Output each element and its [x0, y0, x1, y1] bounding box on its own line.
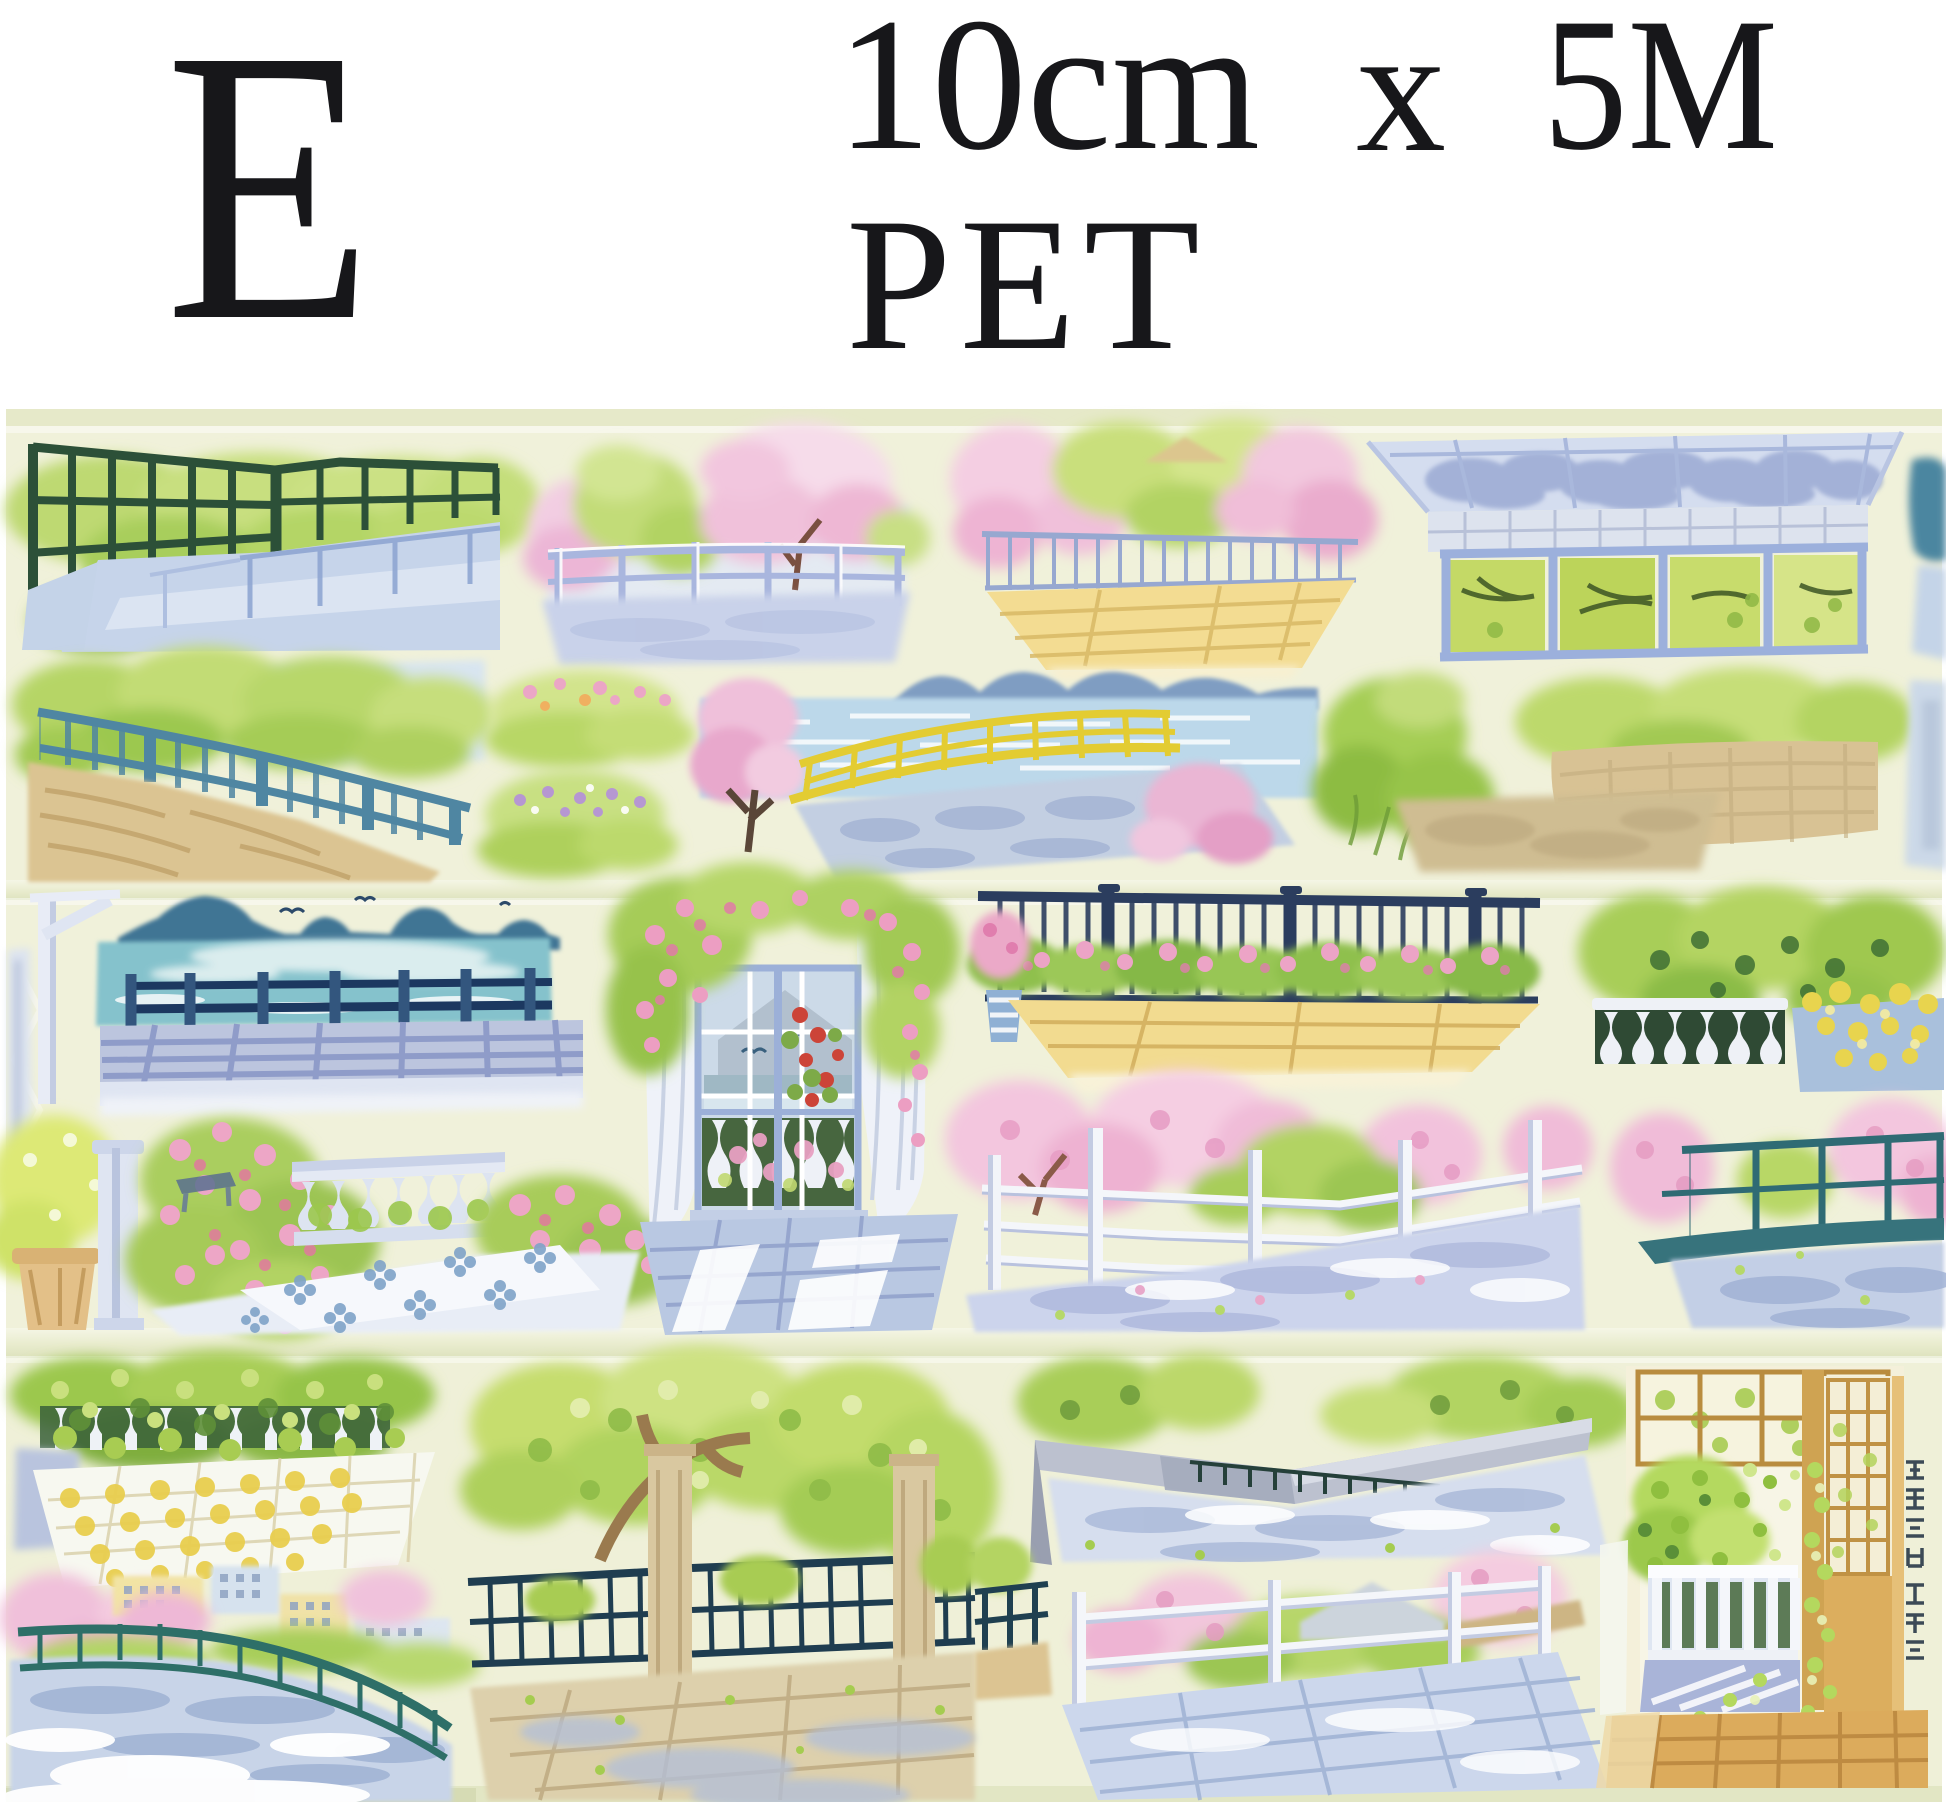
svg-text:5M: 5M [1543, 0, 1778, 190]
svg-text:PET: PET [846, 180, 1208, 390]
svg-text:x: x [1356, 0, 1446, 189]
svg-text:10cm: 10cm [836, 0, 1260, 190]
svg-text:E: E [165, 0, 373, 402]
